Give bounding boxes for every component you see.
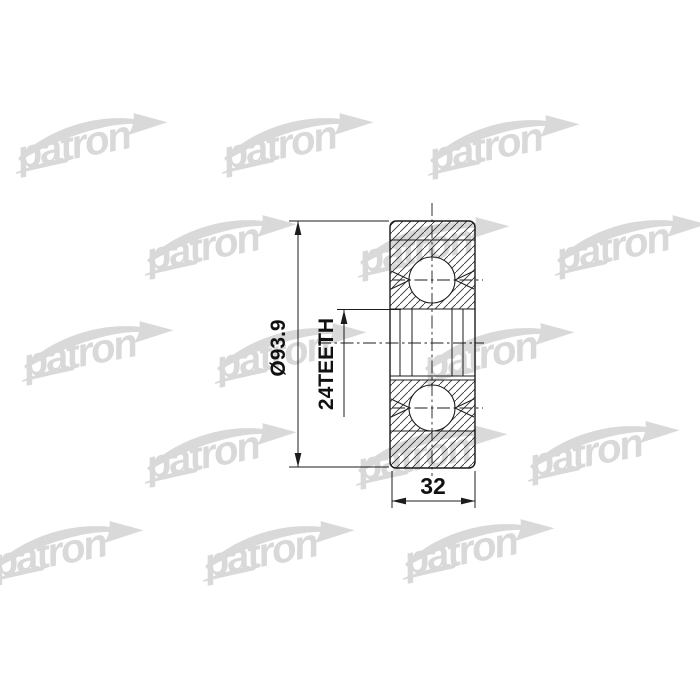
patron-watermark bbox=[399, 517, 554, 584]
arrowhead-up bbox=[295, 221, 302, 235]
patron-watermark bbox=[141, 213, 296, 280]
watermark-layer bbox=[0, 111, 700, 586]
patron-watermark bbox=[18, 319, 173, 386]
arrowhead-down bbox=[295, 453, 302, 467]
patron-watermark bbox=[0, 519, 143, 586]
bottom-cap bbox=[390, 431, 475, 468]
arrowhead-up bbox=[341, 310, 348, 324]
top-cap bbox=[390, 221, 475, 240]
bottom-bearing-hatch bbox=[390, 380, 475, 431]
patron-watermark bbox=[199, 519, 354, 586]
dimension-spline-teeth: 24TEETH bbox=[315, 310, 401, 418]
spline-teeth-label: 24TEETH bbox=[315, 318, 338, 410]
patron-watermark bbox=[424, 113, 579, 180]
arrowhead-right bbox=[461, 498, 475, 505]
top-bearing-hatch bbox=[390, 240, 475, 309]
patron-watermark bbox=[218, 111, 373, 178]
arrowhead-left bbox=[392, 498, 406, 505]
patron-watermark bbox=[141, 421, 296, 488]
body-width-label: 32 bbox=[420, 473, 446, 499]
patron-watermark bbox=[12, 111, 167, 178]
drawing-canvas: patron bbox=[0, 0, 700, 700]
patron-watermark bbox=[524, 419, 679, 486]
patron-watermark bbox=[551, 213, 700, 280]
outer-diameter-label: Ø93.9 bbox=[267, 319, 290, 376]
patron-watermark bbox=[419, 321, 574, 388]
technical-drawing-svg: patron bbox=[0, 0, 700, 700]
